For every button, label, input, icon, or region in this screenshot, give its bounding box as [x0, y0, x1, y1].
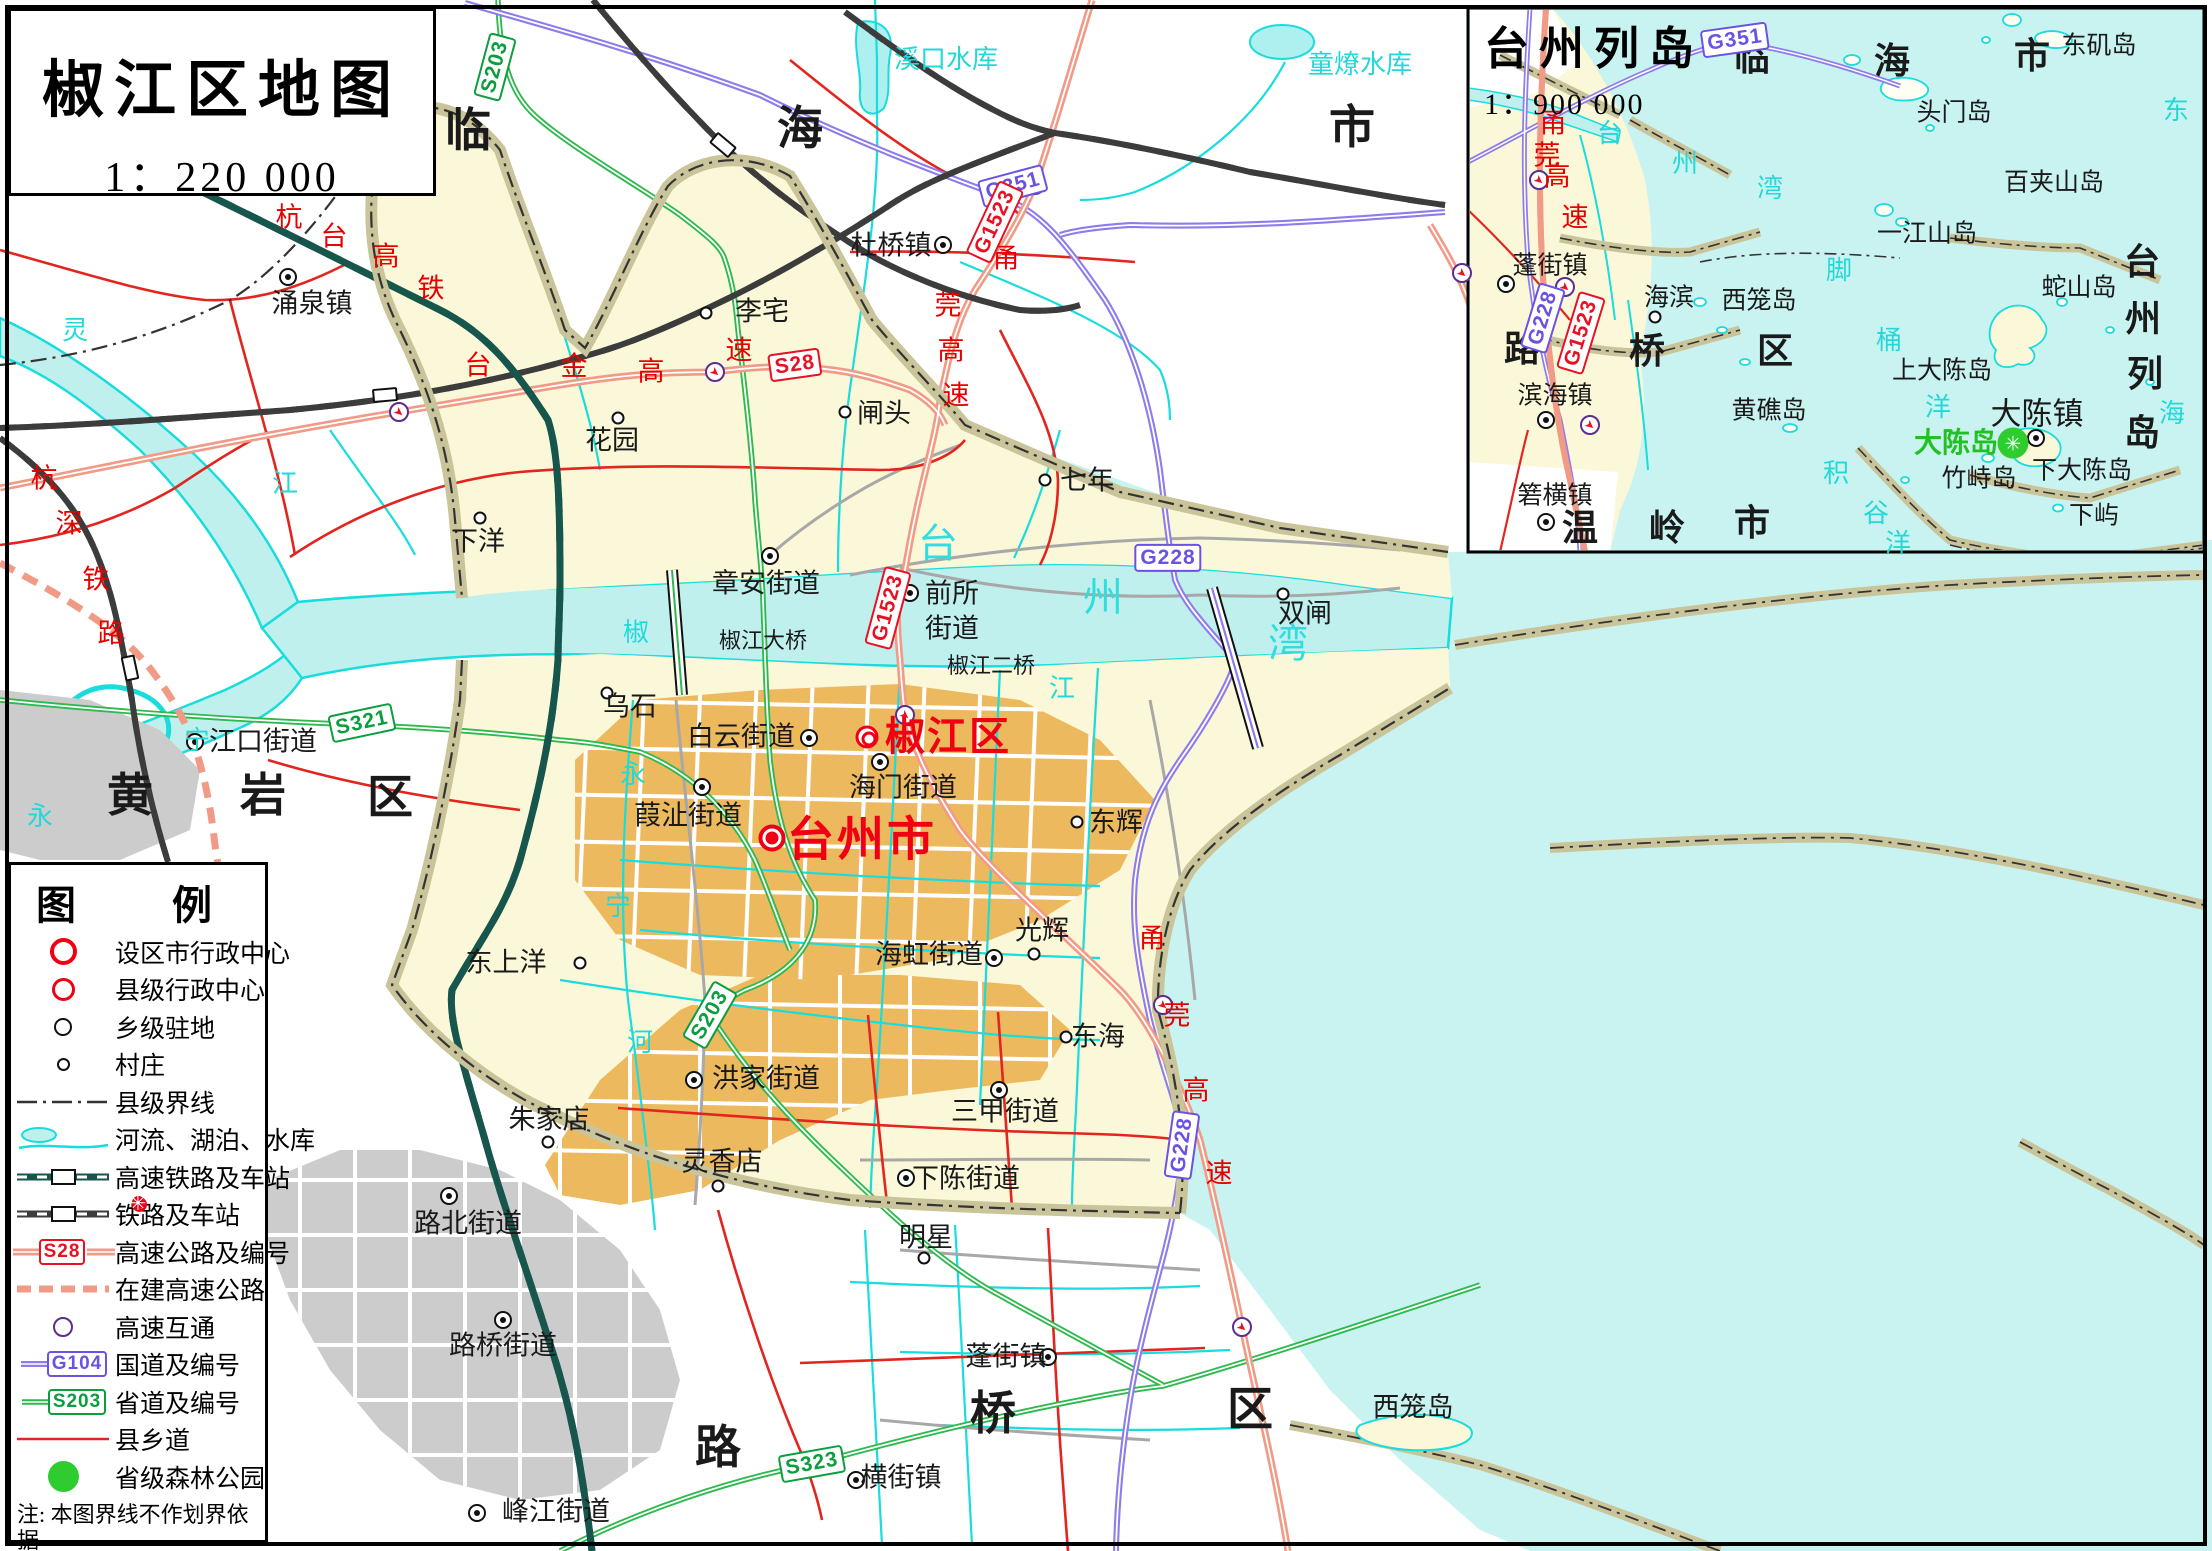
map-title: 椒江区地图 — [11, 39, 433, 129]
legend-item-label: 在建高速公路 — [115, 1271, 265, 1307]
legend-item-label: 县级行政中心 — [115, 971, 265, 1007]
legend-item: 高速互通 — [11, 1308, 265, 1346]
town-legend-icon — [11, 1018, 115, 1036]
water-legend-icon — [11, 1124, 115, 1154]
road-number-badge: G228 — [1163, 1110, 1200, 1181]
provincial-legend-icon: S203 — [11, 1389, 115, 1415]
road-number-badge: G351 — [1700, 21, 1771, 58]
map-note: 注: 本图界线不作划界依据 — [17, 1502, 263, 1551]
county-road-legend-icon — [11, 1426, 115, 1452]
legend-item-label: 高速铁路及车站 — [115, 1159, 290, 1195]
expressway-legend-icon: S28 — [11, 1239, 115, 1265]
legend-item-label: 县乡道 — [115, 1421, 190, 1457]
legend-item-label: 国道及编号 — [115, 1346, 240, 1382]
road-number-badge: G1523 — [864, 566, 912, 651]
legend-item-label: 省级森林公园 — [115, 1459, 265, 1495]
expressway-uc-legend-icon — [11, 1276, 115, 1302]
legend-item-label: 高速公路及编号 — [115, 1234, 290, 1270]
road-number-badge: S28 — [767, 347, 823, 382]
road-number-badge: G228 — [1134, 544, 1201, 572]
legend-item: 县级行政中心 — [11, 971, 265, 1009]
interchange-legend-icon — [11, 1317, 115, 1337]
map-scale: 1：220 000 — [11, 143, 433, 204]
legend-item-label: 设区市行政中心 — [115, 934, 290, 970]
road-number-badge: S203 — [473, 32, 517, 102]
legend-item: G104国道及编号 — [11, 1346, 265, 1384]
road-number-badge: G228 — [1520, 282, 1567, 355]
legend-item: 乡级驻地 — [11, 1008, 265, 1046]
legend-items: 设区市行政中心县级行政中心乡级驻地村庄县级界线河流、湖泊、水库高速铁路及车站铁路… — [11, 933, 265, 1496]
map-page: 涌泉镇李宅花园闸头下洋七年杜桥镇章安街道前所街道双闸乌石白云街道海门街道葭沚街道… — [0, 0, 2212, 1551]
legend-item-label: 河流、湖泊、水库 — [115, 1121, 315, 1157]
legend-item: 省级森林公园 — [11, 1458, 265, 1496]
legend-item-label: 乡级驻地 — [115, 1009, 215, 1045]
legend-box: 图 例 设区市行政中心县级行政中心乡级驻地村庄县级界线河流、湖泊、水库高速铁路及… — [8, 862, 268, 1543]
county-legend-icon — [11, 978, 115, 1001]
forest-legend-icon — [11, 1461, 115, 1492]
legend-item-label: 村庄 — [115, 1046, 165, 1082]
road-number-badge: S203 — [682, 980, 739, 1050]
village-legend-icon — [11, 1058, 115, 1071]
legend-item: S203省道及编号 — [11, 1383, 265, 1421]
legend-item: 县级界线 — [11, 1083, 265, 1121]
title-box: 椒江区地图 1：220 000 — [8, 8, 436, 196]
legend-item: S28高速公路及编号 — [11, 1233, 265, 1271]
legend-item: 县乡道 — [11, 1421, 265, 1459]
legend-item-label: 高速互通 — [115, 1309, 215, 1345]
boundary-legend-icon — [11, 1089, 115, 1115]
road-number-badge: S323 — [778, 1444, 847, 1483]
legend-item: 在建高速公路 — [11, 1271, 265, 1309]
road-number-badge: G1523 — [1556, 291, 1606, 376]
badge-layer: S203G351S28S321G228G1523G1523S203G228S32… — [0, 0, 2212, 1551]
legend-title: 图 例 — [11, 873, 265, 931]
legend-notes: 注: 本图界线不作划界依据地图审核号: 浙S(2024)38号 — [17, 1502, 263, 1551]
rail-legend-icon — [11, 1201, 115, 1227]
road-number-badge: G1523 — [965, 180, 1024, 264]
hsr-legend-icon — [11, 1164, 115, 1190]
legend-item: 村庄 — [11, 1046, 265, 1084]
legend-item: 设区市行政中心 — [11, 933, 265, 971]
legend-item-label: 县级界线 — [115, 1084, 215, 1120]
city-legend-icon — [11, 938, 115, 965]
legend-item: 河流、湖泊、水库 — [11, 1121, 265, 1159]
legend-item-label: 省道及编号 — [115, 1384, 240, 1420]
road-number-badge: S321 — [327, 702, 396, 743]
national-legend-icon: G104 — [11, 1351, 115, 1377]
